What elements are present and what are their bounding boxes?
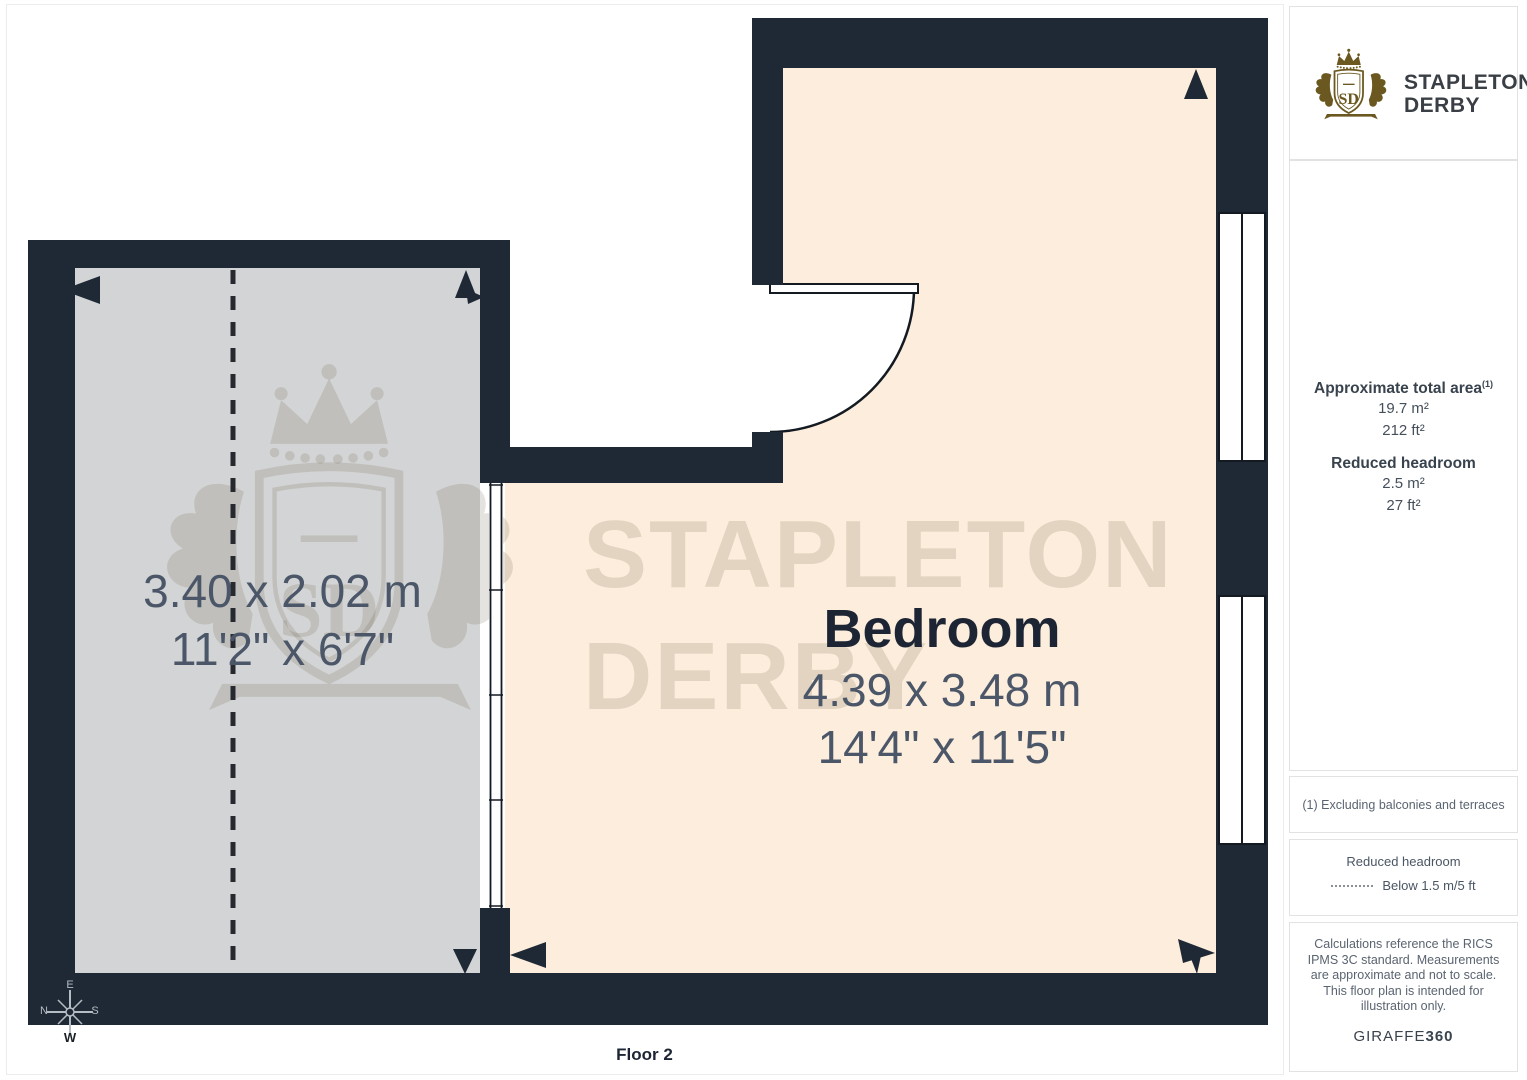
sidebar-disclaimer-card: Calculations reference the RICS IPMS 3C … xyxy=(1289,922,1518,1072)
giraffe360-normal: GIRAFFE xyxy=(1353,1028,1425,1045)
compass-label-east: E xyxy=(60,979,80,991)
reduced-headroom-title: Reduced headroom xyxy=(1290,455,1517,473)
measure-arrow-bedroom-right-tail xyxy=(1188,951,1202,974)
total-area-ft2: 212 ft² xyxy=(1290,420,1517,442)
floor-label: Floor 2 xyxy=(6,1045,1283,1065)
agency-name-line2: DERBY xyxy=(1404,94,1527,117)
bedroom-label: Bedroom 4.39 x 3.48 m 14'4" x 11'5" xyxy=(720,596,1164,776)
agency-name-line1: STAPLETON xyxy=(1404,71,1527,94)
sidebar-area-card: Approximate total area(1) 19.7 m² 212 ft… xyxy=(1289,160,1518,771)
measure-arrow-storage-up-spur xyxy=(466,289,484,304)
footnote-marker: (1) xyxy=(1482,379,1493,389)
area-footnote: (1) Excluding balconies and terraces xyxy=(1302,798,1504,812)
storage-dims-metric: 3.40 x 2.02 m xyxy=(80,562,485,620)
total-area-title: Approximate total area(1) xyxy=(1290,379,1517,398)
compass-label-west: W xyxy=(60,1030,80,1045)
measure-arrow-bedroom-up xyxy=(1184,69,1208,99)
reduced-headroom-ft2: 27 ft² xyxy=(1290,495,1517,517)
giraffe360-bold: 360 xyxy=(1425,1028,1453,1045)
reduced-headroom-m2: 2.5 m² xyxy=(1290,473,1517,495)
bedroom-name: Bedroom xyxy=(720,596,1164,662)
measure-arrow-storage-down xyxy=(453,949,477,974)
agency-logo-text: STAPLETON DERBY xyxy=(1404,71,1527,117)
bedroom-dims-imperial: 14'4" x 11'5" xyxy=(720,719,1164,776)
reduced-headroom-dash-swatch xyxy=(1331,885,1373,887)
measure-arrow-storage-left xyxy=(62,276,100,304)
compass-label-north: N xyxy=(34,1005,54,1017)
sidebar-logo-card: STAPLETON DERBY xyxy=(1289,6,1518,160)
giraffe360-brand: GIRAFFE360 xyxy=(1290,1028,1517,1045)
sidebar-footnote-card: (1) Excluding balconies and terraces xyxy=(1289,776,1518,833)
sidebar-legend-card: Reduced headroom Below 1.5 m/5 ft xyxy=(1289,839,1518,916)
compass-label-south: S xyxy=(85,1005,105,1017)
legend-title: Reduced headroom xyxy=(1290,854,1517,869)
floorplan-page: SD STAPLETON DERBY xyxy=(0,0,1527,1080)
disclaimer-text: Calculations reference the RICS IPMS 3C … xyxy=(1305,937,1503,1015)
measure-arrow-bedroom-left xyxy=(510,942,546,968)
legend-label: Below 1.5 m/5 ft xyxy=(1382,878,1475,893)
storage-dims-imperial: 11'2" x 6'7" xyxy=(80,620,485,678)
total-area-m2: 19.7 m² xyxy=(1290,398,1517,420)
agency-logo-icon xyxy=(1302,47,1400,123)
bedroom-dims-metric: 4.39 x 3.48 m xyxy=(720,662,1164,719)
storage-room-label: 3.40 x 2.02 m 11'2" x 6'7" xyxy=(80,562,485,678)
